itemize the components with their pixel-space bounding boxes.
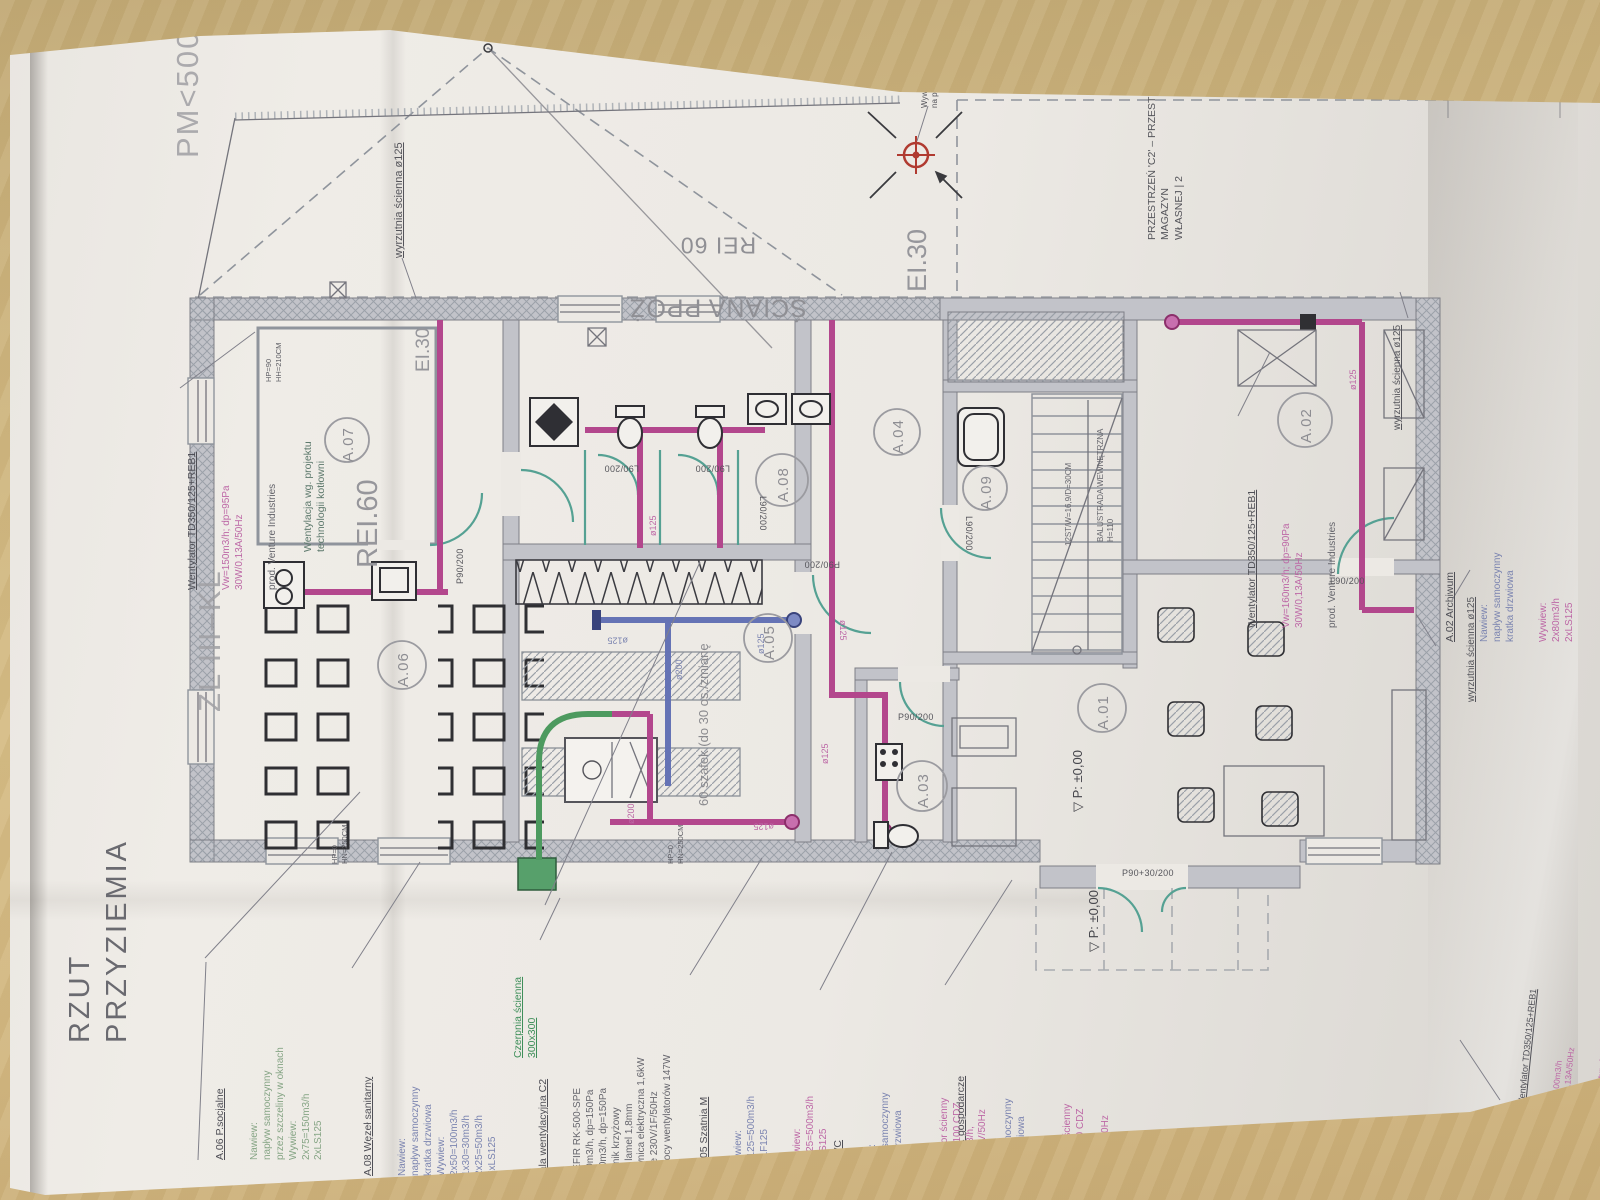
wyrzutnia-label-top-left: wyrzutnia ścienna ø125 [392,53,406,258]
door-label-8: P90+30/200 [1122,868,1186,880]
door-label-2: L90/200 [595,462,639,474]
room-id-a06: A.06 [394,641,413,687]
door-label-5: P90/200 [796,558,840,570]
duct-label-125-blue2: ø125 [756,624,768,654]
door-label-9: L90/200 [962,516,974,558]
duct-label-125-blue: ø125 [598,634,628,646]
boundary-pm-label: PM<500M [168,8,208,158]
paper-sheet: RZUT PRZYZIEMIA PM<500M ZL III–KL ŚCIANA… [0,0,1600,1200]
a07-vent-note: Wentylacja wg. projektu technologii kotł… [302,412,329,552]
ahu-centrala [565,738,657,802]
sill-height-a06: HP=0 HN=250CM [330,814,349,864]
wywietrzak-note: Wywietrzak dach. na podstawie d. [920,0,940,108]
note-a06: A.06 P.socjalne Nawiew: napływ samoczynn… [194,960,347,1160]
fan-note-top-left: Wentylator TD350/125+REB1 Vw=150m3/h; dp… [166,382,301,590]
roof-vent-target [868,112,962,198]
wyrzutnia-label-right-1: wyrzutnia ścienna ø125 [1392,290,1405,430]
level-marker-1: ▽ P: ±0,00 [1070,708,1087,812]
lockers-a06 [262,596,544,858]
duct-label-200-pink: ø200 [626,794,638,824]
ei30-label: EI.30 [900,202,935,292]
room-id-a07: A.07 [339,416,358,462]
door-label-3: L90/200 [686,462,730,474]
duct-label-200-blue: ø200 [674,650,686,680]
level-marker-2: ▽ P: ±0,00 [1086,848,1103,952]
przestrzen-c2-label: PRZESTRZEŃ 'C2' – PRZESTRZEŃ MAGAZYN WŁA… [1146,20,1186,240]
sill-height-a05: HP=0 HN=250CM [666,814,685,864]
door-label-4: L90/200 [756,496,768,538]
fire-wall-label: ŚCIANA PPOŻ REI 60 [588,198,848,355]
fan-note-bottom-right: Wentylator TD350/125+REB1 Vw=100m3/h 30W… [1496,915,1600,1117]
note-centrala: Centrala wentylacyjna C2 EKOZEFIR RK-500… [517,940,695,1198]
door-label-7: L90/200 [1330,576,1376,588]
duct-label-125-pink3: ø125 [836,620,848,650]
lockers-count-note: 60 szafek (do 30 os./zmianę [696,596,713,806]
note-a02-archiwum: A.02 Archiwum Nawiew: napływ samoczynny … [1424,474,1597,642]
duct-label-125-pink: ø125 [744,820,774,832]
room-id-a02: A.02 [1297,397,1316,443]
duct-label-125-pink5: ø125 [1348,360,1360,390]
door-height-a07: HP=90 HH=210CM [264,332,283,382]
room-id-a08: A.08 [774,456,793,502]
balustrade-note: BALUSTRADA WEWNĘTRZNA H=110 [1096,410,1116,542]
room-id-a03: A.03 [914,762,933,808]
stairs-note: 12ST/W=16,9/D=30CM [1064,450,1074,546]
photo-of-floor-plan: RZUT PRZYZIEMIA PM<500M ZL III–KL ŚCIANA… [0,0,1600,1200]
terrace-outline [1036,888,1268,970]
duct-label-125-pink2: ø125 [820,734,832,764]
room-id-a04: A.04 [889,408,908,454]
fan-note-a02: Wentylator TD350/125+REB1 Vw=160m3/h; dp… [1226,420,1361,628]
note-a09: A.09 Pom. gospodarcze Nawiew: napływ sam… [935,983,1134,1188]
door-label-6: P90/200 [898,712,944,724]
ei30-left-label: EI.30 [412,312,436,372]
bench-a08 [516,560,762,604]
door-label-1: P90/200 [455,542,467,584]
duct-label-125-pink4: ø125 [648,506,660,536]
room-id-a09: A.09 [977,464,996,510]
room-id-a01: A.01 [1094,684,1113,730]
